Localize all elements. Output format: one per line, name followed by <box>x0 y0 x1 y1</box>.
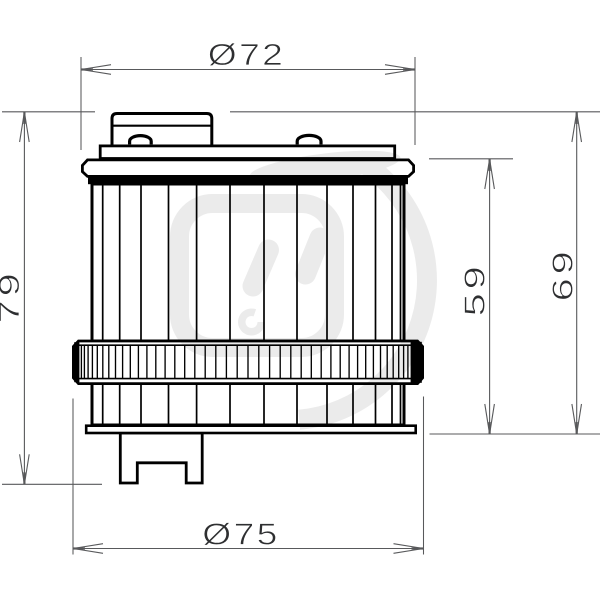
svg-text:79: 79 <box>0 269 25 323</box>
svg-text:59: 59 <box>458 262 491 316</box>
svg-text:Ø72: Ø72 <box>208 38 286 72</box>
svg-text:Ø75: Ø75 <box>202 517 280 551</box>
svg-text:69: 69 <box>546 247 579 301</box>
